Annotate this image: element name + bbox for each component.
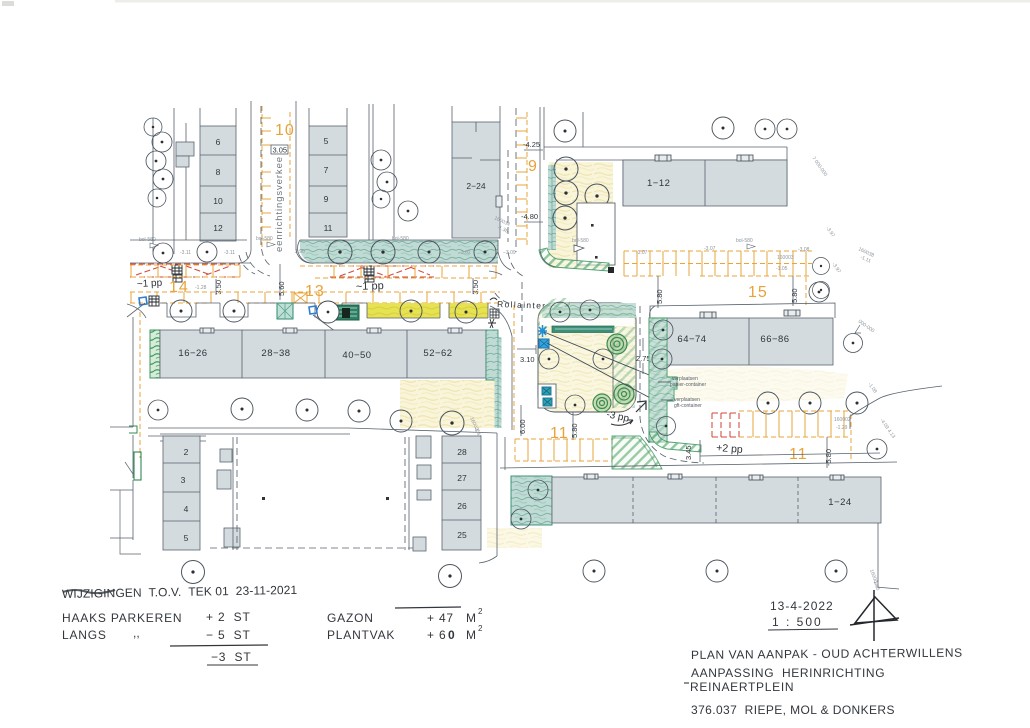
- svg-text:7: 7: [324, 165, 329, 175]
- svg-text:15: 15: [748, 284, 768, 301]
- svg-text:52−62: 52−62: [423, 348, 452, 359]
- svg-text:-3.08: -3.08: [798, 247, 810, 253]
- svg-text:16−26: 16−26: [178, 348, 207, 359]
- svg-text:-1.28: -1.28: [195, 285, 207, 291]
- svg-text:papier-container: papier-container: [670, 382, 706, 388]
- svg-text:1−24: 1−24: [828, 497, 851, 508]
- svg-text:2: 2: [478, 624, 483, 633]
- svg-text:-3.07: -3.07: [636, 250, 648, 256]
- svg-text:13-4-2022: 13-4-2022: [770, 599, 834, 613]
- svg-text:14: 14: [169, 279, 189, 296]
- svg-text:5: 5: [184, 533, 189, 543]
- svg-text:+ 2 ST: + 2 ST: [206, 610, 251, 624]
- svg-text:28: 28: [457, 447, 467, 457]
- svg-text:3.05: 3.05: [273, 146, 288, 155]
- svg-text:1 : 500: 1 : 500: [772, 615, 823, 629]
- svg-text:40−50: 40−50: [342, 350, 371, 361]
- svg-text:-4.25: -4.25: [523, 140, 540, 149]
- svg-text:-3.07: -3.07: [704, 246, 716, 252]
- svg-text:5.80: 5.80: [570, 423, 579, 438]
- svg-text:−3.09: −3.09: [503, 250, 516, 256]
- svg-text:2: 2: [184, 447, 189, 457]
- svg-text:2−24: 2−24: [466, 181, 485, 191]
- svg-text:-4.80: -4.80: [521, 212, 538, 221]
- svg-text:160002: 160002: [834, 417, 851, 423]
- svg-text:− 5 ST: − 5 ST: [206, 628, 251, 642]
- svg-text:5: 5: [324, 136, 329, 146]
- svg-text:6: 6: [216, 137, 221, 147]
- svg-text:5.60: 5.60: [277, 281, 286, 296]
- svg-text:PLAN VAN AANPAK - OUD ACHTERWI: PLAN VAN AANPAK - OUD ACHTERWILLENS: [691, 646, 963, 662]
- svg-text:−3.02: −3.02: [458, 250, 471, 256]
- svg-text:12: 12: [213, 223, 223, 233]
- svg-text:,,: ,,: [133, 626, 140, 640]
- svg-text:3.45: 3.45: [684, 445, 693, 460]
- svg-text:4: 4: [184, 504, 189, 514]
- svg-text:gft-container: gft-container: [674, 403, 702, 409]
- svg-text:376.037 RIEPE, MOL & DONKERS: 376.037 RIEPE, MOL & DONKERS: [691, 703, 895, 717]
- svg-text:3.10: 3.10: [520, 355, 535, 364]
- svg-text:-3.11: -3.11: [180, 250, 191, 256]
- svg-text:bol-580: bol-580: [256, 236, 273, 242]
- svg-text:9: 9: [324, 194, 329, 204]
- svg-text:eenrichtingsverkee: eenrichtingsverkee: [274, 156, 285, 252]
- svg-text:5.80: 5.80: [790, 288, 799, 303]
- svg-text:M: M: [466, 611, 476, 625]
- svg-text:−3 ST: −3 ST: [211, 650, 251, 664]
- svg-text:~1 pp: ~1 pp: [356, 280, 384, 293]
- svg-text:+ 6: + 6: [427, 628, 446, 642]
- svg-text:-1.05: -1.05: [776, 266, 788, 272]
- svg-text:27: 27: [457, 473, 467, 483]
- svg-text:AANPASSING HERINRICHTING: AANPASSING HERINRICHTING: [691, 666, 885, 680]
- svg-text:bol-580: bol-580: [572, 238, 589, 244]
- svg-text:160003: 160003: [777, 255, 794, 261]
- svg-text:-3.11: -3.11: [224, 250, 235, 256]
- svg-text:1−12: 1−12: [647, 178, 670, 189]
- svg-text:10: 10: [275, 122, 295, 139]
- svg-text:PLANTVAK: PLANTVAK: [327, 628, 395, 642]
- svg-text:11: 11: [324, 223, 333, 233]
- svg-text:HAAKS PARKEREN: HAAKS PARKEREN: [62, 611, 182, 625]
- svg-text:2: 2: [478, 607, 483, 616]
- svg-text:~1 pp: ~1 pp: [137, 278, 163, 290]
- svg-text:26: 26: [457, 501, 467, 511]
- svg-text:28−38: 28−38: [261, 348, 290, 359]
- svg-text:8: 8: [216, 167, 221, 177]
- svg-text:+ 47: + 47: [427, 611, 454, 625]
- svg-text:REINAERTPLEIN: REINAERTPLEIN: [690, 680, 794, 694]
- svg-text:LANGS: LANGS: [62, 628, 107, 642]
- svg-text:bol-580: bol-580: [736, 238, 753, 244]
- svg-text:+2 pp: +2 pp: [716, 442, 744, 456]
- svg-text:9: 9: [528, 158, 538, 175]
- svg-text:0: 0: [448, 628, 455, 642]
- svg-text:66−86: 66−86: [760, 334, 789, 345]
- svg-text:5.80: 5.80: [655, 289, 664, 304]
- svg-text:3: 3: [181, 475, 186, 485]
- svg-text:M: M: [466, 628, 476, 642]
- svg-text:64−74: 64−74: [677, 334, 706, 345]
- svg-text:-1.29: -1.29: [836, 425, 848, 431]
- svg-text:GAZON: GAZON: [327, 611, 374, 625]
- svg-text:2.75: 2.75: [636, 354, 651, 363]
- svg-text:10: 10: [213, 196, 223, 206]
- svg-text:6.00: 6.00: [518, 419, 527, 434]
- svg-text:25: 25: [457, 530, 467, 540]
